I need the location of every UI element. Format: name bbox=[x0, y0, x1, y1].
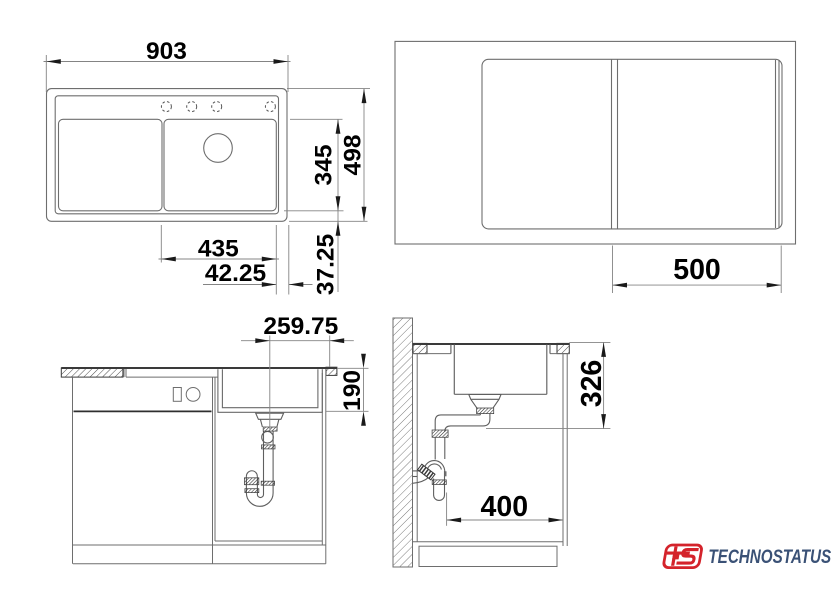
svg-text:190: 190 bbox=[339, 370, 366, 411]
svg-text:37.25: 37.25 bbox=[313, 234, 340, 295]
svg-text:435: 435 bbox=[198, 235, 239, 262]
svg-text:42.25: 42.25 bbox=[205, 260, 266, 287]
svg-text:498: 498 bbox=[340, 135, 367, 176]
svg-text:326: 326 bbox=[576, 360, 608, 408]
svg-text:400: 400 bbox=[481, 491, 529, 523]
svg-text:345: 345 bbox=[311, 145, 338, 186]
svg-text:259.75: 259.75 bbox=[263, 313, 338, 340]
svg-text:903: 903 bbox=[146, 38, 187, 65]
svg-text:500: 500 bbox=[673, 254, 721, 286]
svg-text:TECHNOSTATUS: TECHNOSTATUS bbox=[708, 546, 831, 568]
